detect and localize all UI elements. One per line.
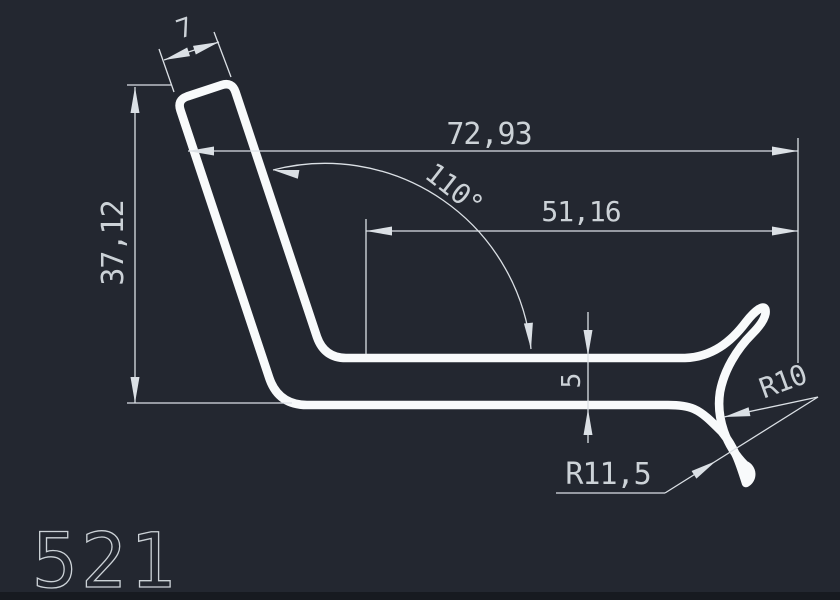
dimension-label-height: 37,12 — [96, 200, 131, 285]
dimension-inner-width: 51,16 — [366, 195, 798, 354]
arrowhead — [366, 227, 392, 236]
arrowhead — [131, 377, 140, 403]
arrowhead — [584, 409, 593, 435]
dimension-label-overall-width: 72,93 — [446, 117, 531, 152]
arrowhead — [193, 42, 219, 55]
dimension-label-radius-large: R11,5 — [565, 457, 650, 492]
arrowhead — [772, 147, 798, 156]
arrowhead — [524, 323, 533, 349]
arrowhead — [273, 170, 299, 179]
drawing-svg: 7 37,12 72,93 110° — [0, 0, 840, 600]
arrowhead — [772, 227, 798, 236]
dimension-label-angle: 110° — [419, 156, 489, 221]
arrowhead — [131, 87, 140, 113]
dimension-thickness: 5 — [557, 312, 593, 443]
dimension-label-thickness: 5 — [557, 374, 587, 389]
cad-drawing-canvas: 7 37,12 72,93 110° — [0, 0, 840, 600]
dimension-label-cap-width: 7 — [173, 12, 196, 45]
arrowhead — [584, 330, 593, 356]
arrowhead — [164, 48, 190, 61]
dimension-cap-width: 7 — [159, 12, 231, 92]
profile-number: 521 — [32, 516, 178, 600]
arrowhead — [692, 461, 716, 479]
dimension-radius-small: R10 — [724, 358, 818, 417]
dimension-radius-large: R11,5 — [556, 397, 818, 493]
dimension-label-radius-small: R10 — [755, 358, 811, 405]
bottom-strip — [0, 592, 840, 600]
dimension-overall-width: 72,93 — [188, 117, 798, 363]
extension-line — [214, 32, 231, 77]
arrowhead — [724, 407, 750, 417]
dimension-label-inner-width: 51,16 — [541, 195, 620, 228]
